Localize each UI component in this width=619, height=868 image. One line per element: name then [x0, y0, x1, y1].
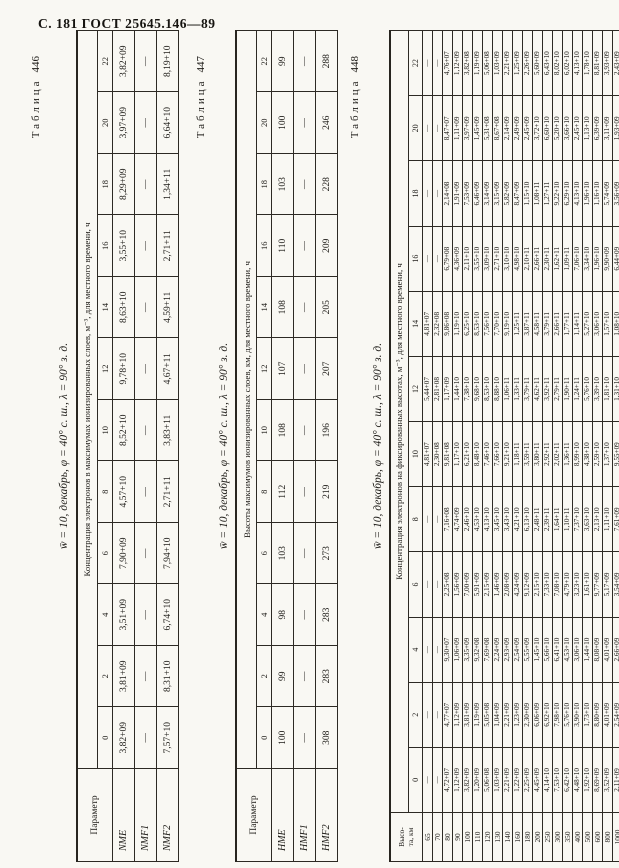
row-label: 110 [473, 813, 483, 862]
data-cell: 110 [272, 215, 294, 277]
table-row: 901,12+091,12+091,06+091,56+094,74+091,1… [453, 31, 463, 862]
data-cell: — [423, 96, 433, 161]
row-label: NMF2 [157, 769, 179, 862]
table-447-block: Таблица447 w̄ = 10, декабрь, φ = 40° с. … [195, 30, 338, 862]
caption-number: 446 [30, 56, 42, 73]
data-cell: 8,88+10 [493, 356, 503, 421]
data-cell: 5,74+09 [603, 161, 613, 226]
data-cell: 2,14+09 [503, 96, 513, 161]
data-cell: 3,15+09 [493, 161, 503, 226]
data-cell: 2,54+09 [613, 682, 619, 747]
data-cell: 5,27+10 [583, 291, 593, 356]
data-cell: 2,66+11 [553, 291, 563, 356]
data-cell: 4,77+07 [443, 682, 453, 747]
data-cell: 4,13+10 [483, 487, 493, 552]
data-cell: 2,24+09 [493, 617, 503, 682]
data-cell: 4,81+07 [423, 291, 433, 356]
data-cell: 6,06+09 [533, 682, 543, 747]
data-cell: 9,19+10 [503, 291, 513, 356]
data-cell: 209 [316, 215, 338, 277]
data-cell: 2,48+11 [533, 487, 543, 552]
time-col-header: 12 [98, 338, 113, 400]
data-cell: 1,06+09 [453, 617, 463, 682]
data-cell: — [294, 277, 316, 339]
data-cell: 3,23+10 [573, 552, 583, 617]
data-cell: 1,56+09 [453, 552, 463, 617]
data-cell: 5,66+10 [543, 617, 553, 682]
data-cell: 3,45+10 [493, 487, 503, 552]
data-cell: 1,19+10 [453, 291, 463, 356]
param-column-header: Высо-та, км [390, 813, 423, 862]
data-cell: 3,52+09 [603, 747, 613, 812]
data-cell: 1,78+10 [583, 31, 593, 96]
data-cell: 2,13+10 [593, 487, 603, 552]
row-label: 90 [453, 813, 463, 862]
table-447-caption: Таблица447 [195, 30, 207, 862]
data-cell: — [433, 487, 443, 552]
data-cell: — [135, 277, 157, 339]
table-header: ПараметрКонцентрация электронов в максим… [77, 31, 113, 862]
data-cell: 3,35+09 [463, 617, 473, 682]
data-cell: 6,02+10 [563, 31, 573, 96]
data-cell: 4,14+10 [543, 747, 553, 812]
data-cell: 5,82+09 [503, 161, 513, 226]
data-cell: 7,00+09 [463, 552, 473, 617]
time-col-header: 8 [257, 461, 272, 523]
data-cell: 2,02+11 [553, 422, 563, 487]
time-col-header: 22 [98, 31, 113, 93]
time-col-header: 6 [409, 552, 423, 617]
time-col-header: 20 [257, 92, 272, 154]
data-cell: 7,61+09 [613, 487, 619, 552]
data-cell: 4,76+07 [443, 31, 453, 96]
data-cell: 2,21+09 [503, 682, 513, 747]
data-cell: 3,51+09 [113, 584, 135, 646]
row-label: NMF1 [135, 769, 157, 862]
data-cell: 308 [316, 707, 338, 769]
data-cell: 4,72+07 [443, 747, 453, 812]
time-col-header: 10 [98, 400, 113, 462]
data-cell: 5,20+10 [553, 96, 563, 161]
data-cell: 5,60+09 [533, 31, 543, 96]
time-col-header: 22 [409, 31, 423, 96]
data-cell: 3,59+11 [523, 422, 533, 487]
data-cell: — [135, 154, 157, 216]
data-cell: 3,87+11 [523, 291, 533, 356]
data-cell: 2,54+09 [513, 617, 523, 682]
data-cell: 8,67+08 [493, 96, 503, 161]
data-cell: 3,90+10 [573, 682, 583, 747]
data-cell: 4,98+10 [513, 226, 523, 291]
data-cell: 3,97+09 [113, 92, 135, 154]
data-cell: 9,90+09 [603, 226, 613, 291]
data-cell: 1,46+09 [493, 552, 503, 617]
time-col-header: 0 [98, 707, 113, 769]
data-cell: 1,08+10 [613, 291, 619, 356]
time-col-header: 10 [409, 422, 423, 487]
data-cell: — [423, 31, 433, 96]
data-cell: 8,47+09 [513, 161, 523, 226]
row-label: 1000 [613, 813, 619, 862]
time-col-header: 0 [257, 707, 272, 769]
table-446-caption: Таблица446 [30, 30, 42, 862]
data-cell: 3,34+10 [583, 226, 593, 291]
data-cell: 4,81+07 [423, 422, 433, 487]
table-row: NMF1———————————— [135, 31, 157, 862]
table-448-block: Таблица448 w̄ = 10, декабрь, φ = 40° с. … [349, 30, 619, 862]
data-cell: 273 [316, 523, 338, 585]
data-cell: 9,68+10 [473, 356, 483, 421]
data-cell: 2,71+11 [157, 215, 179, 277]
data-cell: 1,12+09 [453, 747, 463, 812]
row-label: 200 [533, 813, 543, 862]
data-cell: 4,67+11 [157, 338, 179, 400]
data-cell: 1,14+11 [573, 291, 583, 356]
caption-word: Таблица [349, 79, 361, 139]
data-cell: 6,64+10 [157, 92, 179, 154]
data-cell: 4,21+10 [513, 487, 523, 552]
row-label: 300 [553, 813, 563, 862]
data-cell: 8,31+10 [157, 646, 179, 708]
data-cell: 1,73+10 [583, 682, 593, 747]
data-cell: 2,25+09 [523, 747, 533, 812]
row-label: 180 [523, 813, 533, 862]
time-col-header: 10 [257, 400, 272, 462]
data-cell: 1,17+09 [443, 356, 453, 421]
data-cell: 7,56+10 [483, 291, 493, 356]
time-col-header: 18 [409, 161, 423, 226]
data-cell: 2,43+09 [613, 31, 619, 96]
data-cell: — [135, 31, 157, 93]
data-cell: — [294, 400, 316, 462]
data-cell: 2,81+08 [433, 356, 443, 421]
data-cell: 9,22+10 [553, 161, 563, 226]
data-cell: 7,53+09 [463, 161, 473, 226]
data-cell: 1,12+09 [453, 31, 463, 96]
data-cell: 1,11+10 [603, 487, 613, 552]
data-cell: 6,43+10 [543, 31, 553, 96]
span-header: Концентрация электронов в максимумах ион… [77, 31, 98, 769]
data-cell: 108 [272, 400, 294, 462]
data-cell: 3,81+09 [463, 682, 473, 747]
data-cell: — [433, 552, 443, 617]
data-cell: — [433, 682, 443, 747]
data-cell: 8,02+10 [553, 31, 563, 96]
data-cell: 3,14+09 [483, 161, 493, 226]
data-cell: 2,79+11 [553, 356, 563, 421]
row-label: 350 [563, 813, 573, 862]
row-label: HME [272, 769, 294, 862]
data-cell: 8,08+09 [593, 617, 603, 682]
data-cell: 1,22+09 [513, 747, 523, 812]
data-cell: 1,03+09 [493, 31, 503, 96]
time-col-header: 4 [257, 584, 272, 646]
data-cell: — [433, 161, 443, 226]
data-cell: 1,19+09 [473, 682, 483, 747]
data-cell: — [433, 31, 443, 96]
data-cell: 7,57+10 [157, 707, 179, 769]
time-col-header: 6 [98, 523, 113, 585]
row-label: 400 [573, 813, 583, 862]
data-cell: 8,69+09 [593, 747, 603, 812]
data-cell: 1,13+10 [583, 96, 593, 161]
param-column-header: Параметр [236, 769, 272, 862]
table-446-block: Таблица446 w̄ = 10, декабрь, φ = 40° с. … [30, 30, 179, 862]
table-row: 1402,21+092,21+092,93+092,08+093,43+109,… [503, 31, 513, 862]
data-cell: 2,25+08 [443, 552, 453, 617]
data-cell: 2,21+09 [503, 31, 513, 96]
data-cell: 3,93+09 [603, 31, 613, 96]
data-cell: — [294, 154, 316, 216]
data-cell: 4,79+10 [563, 552, 573, 617]
data-cell: 1,33+11 [513, 356, 523, 421]
data-cell: 3,82+09 [113, 31, 135, 93]
data-cell: 5,06+08 [483, 747, 493, 812]
data-cell: 3,09+10 [483, 226, 493, 291]
row-label: HMF1 [294, 769, 316, 862]
data-cell: 5,31+08 [483, 96, 493, 161]
data-cell: 107 [272, 338, 294, 400]
data-cell: 1,25+09 [513, 31, 523, 96]
data-cell: — [433, 747, 443, 812]
data-cell: 6,41+10 [553, 617, 563, 682]
data-cell: 3,55+10 [113, 215, 135, 277]
time-col-header: 16 [257, 215, 272, 277]
data-cell: 1,04+09 [493, 682, 503, 747]
data-cell: 9,32+08 [473, 617, 483, 682]
data-cell: 7,38+10 [463, 356, 473, 421]
data-cell: 4,45+09 [533, 747, 543, 812]
data-cell: 7,94+10 [157, 523, 179, 585]
data-cell: 3,56+09 [613, 161, 619, 226]
data-cell: 7,70+10 [493, 291, 503, 356]
data-cell: 3,83+11 [157, 400, 179, 462]
data-cell: — [423, 552, 433, 617]
data-cell: 1,44+10 [583, 617, 593, 682]
row-label: 80 [443, 813, 453, 862]
data-cell: 1,17+10 [453, 422, 463, 487]
caption-word: Таблица [30, 79, 42, 139]
data-cell: — [135, 646, 157, 708]
data-cell: 4,74+09 [453, 487, 463, 552]
row-label: 160 [513, 813, 523, 862]
data-cell: 3,79+11 [543, 291, 553, 356]
data-cell: 6,79+08 [443, 226, 453, 291]
data-cell: 6,29+10 [563, 161, 573, 226]
data-cell: 6,46+09 [473, 161, 483, 226]
data-cell: 5,44+07 [423, 356, 433, 421]
data-cell: 2,15+10 [533, 552, 543, 617]
data-cell: 1,61+10 [583, 552, 593, 617]
data-cell: 7,37+10 [573, 487, 583, 552]
time-col-header: 16 [98, 215, 113, 277]
data-cell: — [294, 215, 316, 277]
data-cell: 1,18+11 [513, 422, 523, 487]
data-cell: 2,93+09 [503, 617, 513, 682]
data-cell: 3,66+10 [563, 96, 573, 161]
time-col-header: 12 [257, 338, 272, 400]
data-cell: 6,13+10 [523, 487, 533, 552]
time-col-header: 20 [98, 92, 113, 154]
data-cell: 98 [272, 584, 294, 646]
data-cell: — [433, 617, 443, 682]
data-cell: 108 [272, 277, 294, 339]
data-cell: 283 [316, 584, 338, 646]
data-cell: 196 [316, 400, 338, 462]
row-label: HMF2 [316, 769, 338, 862]
data-cell: 9,12+09 [523, 552, 533, 617]
data-cell: 8,19+10 [157, 31, 179, 93]
data-cell: 3,80+11 [533, 422, 543, 487]
table-row: 2004,45+096,06+091,45+102,15+102,48+113,… [533, 31, 543, 862]
data-cell: 1,81+10 [603, 356, 613, 421]
table-row: 1301,03+091,04+092,24+091,46+093,45+107,… [493, 31, 503, 862]
data-cell: 5,17+09 [603, 552, 613, 617]
data-cell: 1,96+10 [593, 226, 603, 291]
data-cell: 2,45+10 [573, 96, 583, 161]
data-cell: 8,53+10 [483, 356, 493, 421]
time-col-header: 18 [98, 154, 113, 216]
data-cell: 6,39+09 [593, 96, 603, 161]
data-cell: 103 [272, 523, 294, 585]
data-cell: 100 [272, 92, 294, 154]
data-cell: 100 [272, 707, 294, 769]
data-cell: — [294, 338, 316, 400]
data-cell: 8,80+09 [593, 682, 603, 747]
data-cell: — [135, 215, 157, 277]
span-header: Высоты максимумов ионизированных слоев, … [236, 31, 257, 769]
data-cell: 1,44+10 [453, 356, 463, 421]
table-448-caption: Таблица448 [349, 30, 361, 862]
data-cell: — [135, 338, 157, 400]
data-cell: 8,52+10 [113, 400, 135, 462]
data-cell: 2,11+10 [463, 226, 473, 291]
time-col-header: 8 [409, 487, 423, 552]
data-cell: 2,15+09 [483, 552, 493, 617]
data-cell: — [294, 461, 316, 523]
data-cell: 7,98+10 [553, 682, 563, 747]
data-cell: 3,63+10 [583, 487, 593, 552]
data-cell: 1,36+11 [563, 422, 573, 487]
data-cell: 1,31+10 [613, 356, 619, 421]
data-cell: 6,44+09 [613, 226, 619, 291]
row-label: 600 [593, 813, 603, 862]
data-cell: — [135, 92, 157, 154]
table-row: 10002,11+092,54+092,66+093,54+097,61+099… [613, 31, 619, 862]
data-cell: 2,26+09 [523, 31, 533, 96]
row-label: 65 [423, 813, 433, 862]
time-col-header: 14 [257, 277, 272, 339]
data-cell: 2,10+11 [523, 226, 533, 291]
data-cell: 7,66+10 [493, 422, 503, 487]
data-cell: 1,10+11 [563, 487, 573, 552]
data-cell: 1,34+11 [157, 154, 179, 216]
data-cell: 103 [272, 154, 294, 216]
data-cell: 283 [316, 646, 338, 708]
scanned-page: С. 181 ГОСТ 25645.146—89 Таблица446 w̄ =… [0, 0, 619, 868]
data-cell: 2,71+10 [493, 226, 503, 291]
data-cell: 9,78+10 [113, 338, 135, 400]
data-cell: — [294, 31, 316, 93]
data-cell: 1,45+09 [473, 96, 483, 161]
data-cell: 4,01+09 [603, 682, 613, 747]
table-row: 6008,69+098,80+098,08+099,77+092,13+102,… [593, 31, 603, 862]
row-label: 500 [583, 813, 593, 862]
data-cell: 1,12+09 [453, 682, 463, 747]
data-cell: 4,62+11 [533, 356, 543, 421]
data-cell: 6,21+10 [463, 422, 473, 487]
table-row: 3007,53+107,98+106,41+107,08+101,64+112,… [553, 31, 563, 862]
table-row: 4004,48+103,90+103,06+103,23+107,37+108,… [573, 31, 583, 862]
data-cell: 2,30+11 [543, 226, 553, 291]
data-cell: 1,96+10 [583, 161, 593, 226]
data-cell: 5,55+09 [523, 617, 533, 682]
data-cell: 4,53+10 [563, 617, 573, 682]
table-row: 1601,22+091,23+092,54+094,24+094,21+101,… [513, 31, 523, 862]
data-cell: 6,25+10 [463, 291, 473, 356]
time-col-header: 2 [409, 682, 423, 747]
data-cell: 2,32+08 [433, 291, 443, 356]
data-cell: 1,57+10 [603, 291, 613, 356]
table-448-condition: w̄ = 10, декабрь, φ = 40° с. ш., λ = 90°… [372, 30, 384, 862]
row-label: 130 [493, 813, 503, 862]
caption-number: 447 [195, 56, 207, 73]
data-cell: 5,06+08 [483, 31, 493, 96]
data-cell: 3,06+10 [593, 291, 603, 356]
data-cell: 2,49+09 [513, 96, 523, 161]
data-cell: 6,60+10 [543, 96, 553, 161]
data-cell: 4,24+09 [513, 552, 523, 617]
data-cell: 9,55+09 [613, 422, 619, 487]
time-col-header: 14 [409, 291, 423, 356]
table-row: 2504,14+106,92+105,66+107,33+102,39+112,… [543, 31, 553, 862]
data-cell: 3,54+09 [613, 552, 619, 617]
data-cell: 2,46+10 [463, 487, 473, 552]
data-cell: 1,92+10 [583, 747, 593, 812]
time-col-header: 20 [409, 96, 423, 161]
data-cell: — [433, 226, 443, 291]
data-cell: 2,21+09 [503, 747, 513, 812]
caption-number: 448 [349, 56, 361, 73]
data-cell: 2,30+08 [433, 422, 443, 487]
data-cell: 1,93+09 [613, 96, 619, 161]
time-col-header: 18 [257, 154, 272, 216]
data-cell: 1,45+10 [533, 617, 543, 682]
table-row: 1205,06+085,05+087,69+082,15+094,13+107,… [483, 31, 493, 862]
data-cell: 1,23+09 [513, 682, 523, 747]
data-cell: 7,33+10 [543, 552, 553, 617]
data-cell: 8,81+09 [593, 31, 603, 96]
data-cell: 3,06+10 [573, 617, 583, 682]
data-cell: 99 [272, 31, 294, 93]
data-cell: 1,06+11 [503, 356, 513, 421]
time-col-header: 14 [98, 277, 113, 339]
data-cell: 4,53+10 [473, 487, 483, 552]
table-row: 804,72+074,77+079,30+072,25+087,16+089,8… [443, 31, 453, 862]
table-row: 1101,20+091,19+099,32+085,91+094,53+108,… [473, 31, 483, 862]
data-cell: 2,14+08 [443, 161, 453, 226]
data-cell: 5,05+08 [483, 682, 493, 747]
table-body: HME100999810311210810710811010310099HMF1… [272, 31, 338, 862]
data-cell: 6,92+10 [543, 682, 553, 747]
data-cell: 8,48+10 [473, 422, 483, 487]
data-cell: 3,11+09 [603, 96, 613, 161]
table-row: 65—————4,81+075,44+074,81+07———— [423, 31, 433, 862]
data-cell: 1,37+10 [603, 422, 613, 487]
data-cell: 8,29+09 [113, 154, 135, 216]
data-cell: 4,13+10 [573, 31, 583, 96]
table-448: Высо-та, кмКонцентрация электронов на фи… [389, 30, 619, 862]
